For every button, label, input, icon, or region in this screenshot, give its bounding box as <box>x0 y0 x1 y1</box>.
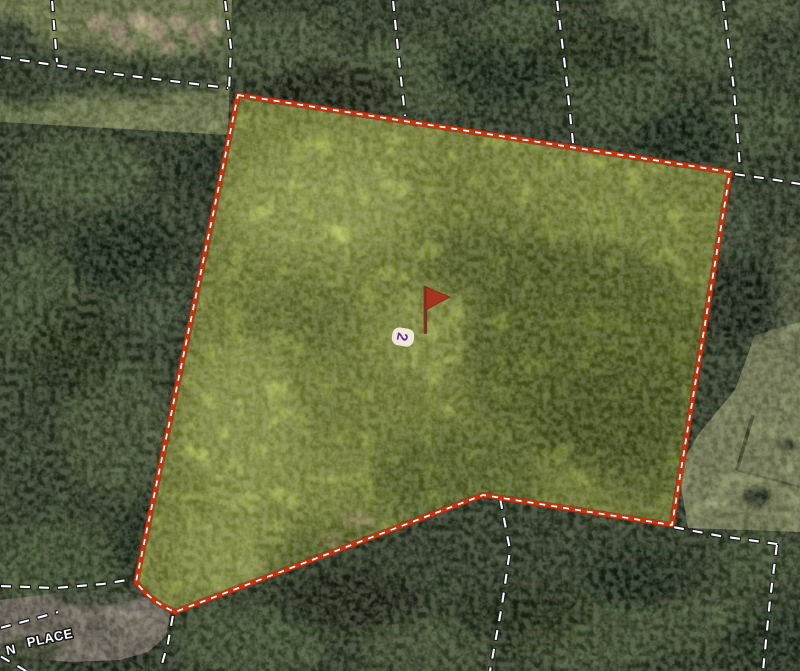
map-canvas[interactable]: N PLACE 2 <box>0 0 800 671</box>
aerial-map: N PLACE 2 <box>0 0 800 671</box>
